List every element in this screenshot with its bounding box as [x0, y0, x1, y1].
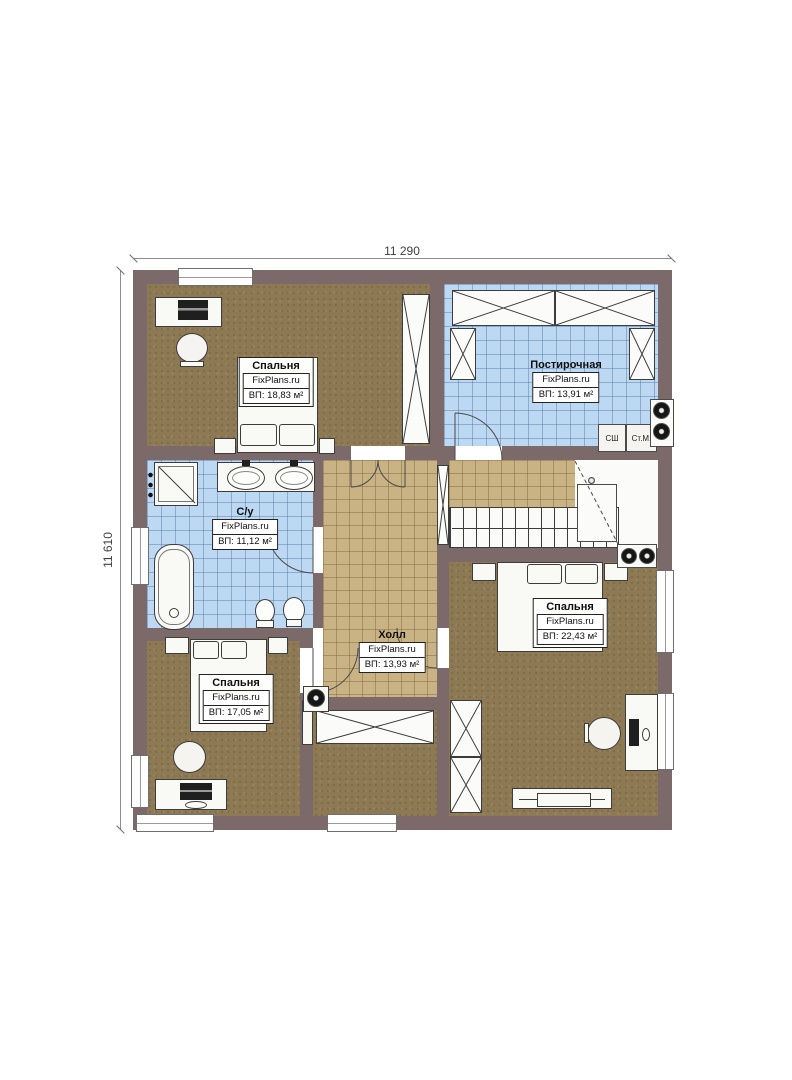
- sink: [275, 466, 313, 490]
- room-label-group: FixPlans.ru ВП: 13,93 м²: [359, 642, 426, 673]
- shower-valves: [147, 470, 154, 502]
- door-opening-bathroom: [313, 527, 323, 573]
- room-name: Спальня: [546, 601, 594, 613]
- wardrobe-bedroom-right-upper: [450, 700, 482, 757]
- closet-hall: [316, 710, 434, 744]
- nightstand: [268, 637, 288, 654]
- area-label: ВП: 17,05 м²: [204, 705, 269, 720]
- cabinet-laundry-top-right: [555, 290, 655, 326]
- room-label-group: FixPlans.ru ВП: 11,12 м²: [212, 519, 278, 550]
- floor-plan-image: 11 290 11 610: [0, 0, 792, 1080]
- window-right-upper: [656, 570, 674, 653]
- room-label-hall: Холл FixPlans.ru ВП: 13,93 м²: [359, 629, 426, 673]
- door-opening-hall-bedroom: [351, 446, 405, 460]
- brand-label: FixPlans.ru: [534, 373, 599, 387]
- nightstand: [319, 438, 335, 454]
- pillow: [221, 641, 247, 659]
- room-label-group: FixPlans.ru ВП: 18,83 м²: [243, 373, 310, 404]
- area-label: ВП: 13,91 м²: [534, 387, 599, 402]
- nightstand: [165, 637, 189, 654]
- wardrobe-bedroom-right-lower: [450, 757, 482, 813]
- dimension-width-line: [133, 258, 672, 259]
- cabinet-laundry-top-left: [452, 290, 555, 326]
- flue-pipe: [653, 402, 670, 419]
- faucet-icon: [242, 460, 250, 466]
- room-name: Постирочная: [530, 359, 601, 371]
- stair-railing-line: [575, 461, 619, 546]
- wardrobe-bedroom-tl: [402, 294, 430, 444]
- window-left-bedroom: [131, 755, 149, 808]
- dryer-cabinet: СШ: [598, 424, 626, 452]
- pillow: [240, 424, 277, 446]
- desk-chair: [587, 717, 621, 750]
- brand-label: FixPlans.ru: [213, 520, 277, 534]
- boiler-unit: [307, 689, 325, 707]
- mouse-icon: [642, 728, 650, 741]
- faucet-icon: [290, 460, 298, 466]
- brand-label: FixPlans.ru: [360, 643, 425, 657]
- window-top: [178, 268, 253, 286]
- door-arc-double-left: [351, 460, 378, 487]
- window-bottom-bedroom: [136, 814, 214, 832]
- nightstand: [472, 563, 496, 581]
- area-label: ВП: 11,12 м²: [213, 534, 277, 549]
- pillow: [279, 424, 315, 446]
- window-bottom-niche: [327, 814, 397, 832]
- bidet-base: [286, 619, 302, 627]
- brand-label: FixPlans.ru: [244, 374, 309, 388]
- wall-hall-niche: [313, 697, 437, 710]
- floor-stair-landing: [449, 460, 575, 507]
- tv-stand: [512, 788, 612, 809]
- dimension-height-line: [120, 270, 121, 830]
- door-arc-double-right: [378, 460, 405, 487]
- room-label-laundry: Постирочная FixPlans.ru ВП: 13,91 м²: [530, 359, 601, 403]
- brand-label: FixPlans.ru: [538, 615, 603, 629]
- dimension-height-label: 11 610: [101, 532, 115, 568]
- toilet-tank: [256, 620, 274, 628]
- area-label: ВП: 22,43 м²: [538, 629, 603, 644]
- shower-tray: [154, 462, 198, 506]
- flue-pipe: [653, 423, 670, 440]
- pillow: [193, 641, 219, 659]
- dimension-width-label: 11 290: [384, 244, 420, 258]
- stair-rail-post: [588, 477, 595, 484]
- room-label-group: FixPlans.ru ВП: 17,05 м²: [203, 690, 270, 721]
- room-label-bedroom-bl: Спальня FixPlans.ru ВП: 17,05 м²: [199, 674, 274, 724]
- door-opening-bedroom-right: [437, 628, 449, 668]
- area-label: ВП: 13,93 м²: [360, 657, 425, 672]
- room-name: Спальня: [212, 677, 260, 689]
- wall-bedroom-laundry: [430, 284, 444, 460]
- room-label-bathroom: С/у FixPlans.ru ВП: 11,12 м²: [212, 506, 278, 550]
- printer-icon: [180, 783, 212, 800]
- printer-icon: [178, 300, 208, 320]
- window-right-lower: [656, 693, 674, 770]
- chair-back: [180, 361, 204, 367]
- door-arc-laundry: [455, 413, 502, 460]
- cabinet-laundry-left: [450, 328, 476, 380]
- brand-label: FixPlans.ru: [204, 691, 269, 705]
- monitor-icon: [629, 719, 639, 746]
- flue-pipe: [639, 548, 655, 564]
- room-label-bedroom-right: Спальня FixPlans.ru ВП: 22,43 м²: [533, 598, 608, 648]
- room-label-group: FixPlans.ru ВП: 13,91 м²: [533, 372, 600, 403]
- area-label: ВП: 18,83 м²: [244, 388, 309, 403]
- nightstand: [214, 438, 236, 454]
- cabinet-laundry-right: [629, 328, 655, 380]
- room-label-bedroom-tl: Спальня FixPlans.ru ВП: 18,83 м²: [239, 357, 314, 407]
- room-name: С/у: [236, 506, 253, 518]
- pillow: [527, 564, 562, 584]
- desk-chair: [176, 333, 208, 363]
- chair-back: [584, 723, 589, 743]
- room-name: Холл: [378, 629, 406, 641]
- shaft-hall-stairs: [437, 465, 449, 545]
- pillow: [565, 564, 598, 584]
- armchair: [173, 741, 206, 773]
- room-name: Спальня: [252, 360, 300, 372]
- room-label-group: FixPlans.ru ВП: 22,43 м²: [537, 614, 604, 645]
- tub-drain: [169, 608, 179, 618]
- sink: [227, 466, 265, 490]
- window-left-bathroom: [131, 527, 149, 585]
- flue-pipe: [621, 548, 637, 564]
- printer-tray: [185, 801, 207, 809]
